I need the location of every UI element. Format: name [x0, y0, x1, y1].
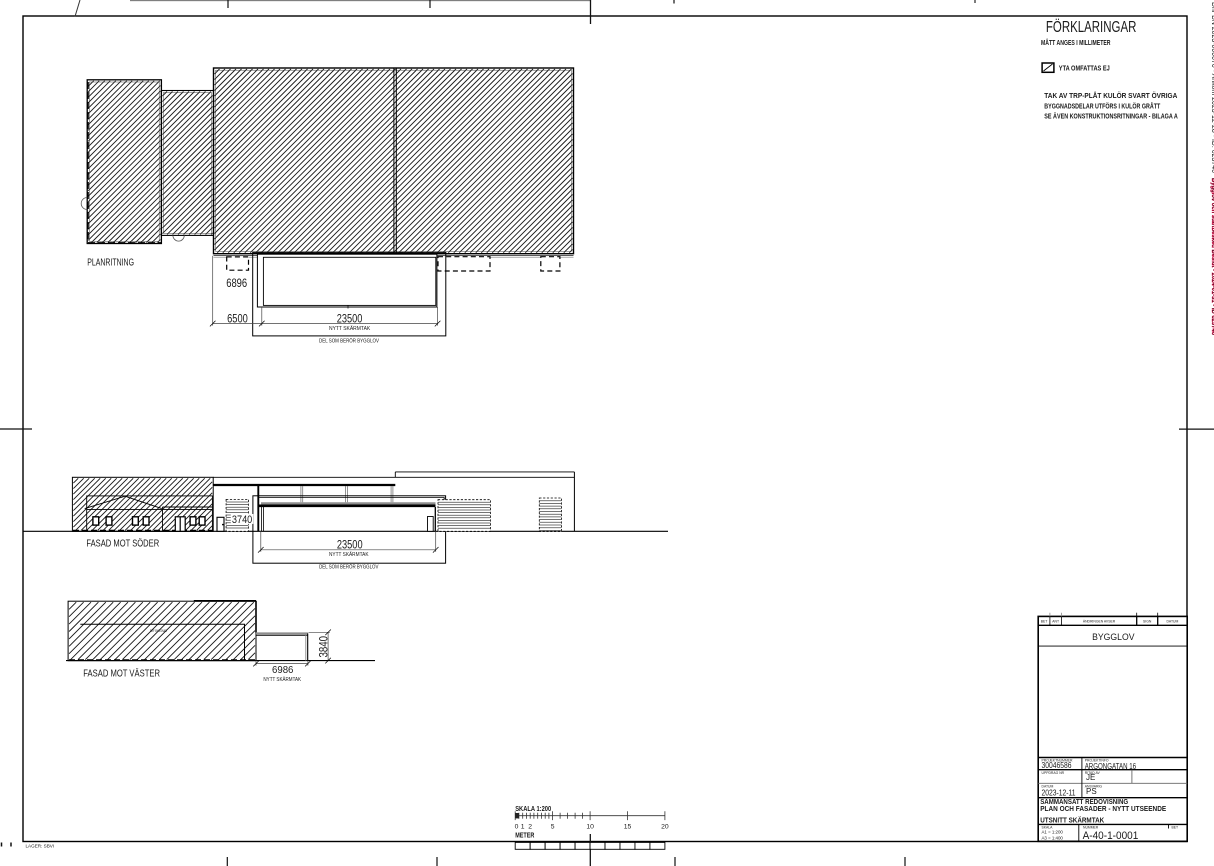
svg-text:ÄNDRINGEN AVSER: ÄNDRINGEN AVSER — [1083, 619, 1116, 623]
svg-text:6500: 6500 — [227, 314, 248, 326]
svg-text:6896: 6896 — [226, 278, 247, 290]
svg-text:UTSNITT SKÄRMTAK: UTSNITT SKÄRMTAK — [1040, 816, 1104, 825]
svg-text:Dnr BN 2023-000070 - Ankom 202: Dnr BN 2023-000070 - Ankom 2023-12-28 - … — [1210, 2, 1214, 173]
svg-text:BET: BET — [1041, 619, 1048, 623]
svg-text:ARGONGATAN 16: ARGONGATAN 16 — [1085, 762, 1137, 771]
svg-text:SKALA 1:200: SKALA 1:200 — [515, 806, 551, 813]
svg-text:PLAN OCH FASADER - NYTT UTSEEN: PLAN OCH FASADER - NYTT UTSEENDE — [1040, 804, 1166, 813]
svg-text:PLANRITNING: PLANRITNING — [87, 257, 134, 268]
svg-text:FASAD MOT VÄSTER: FASAD MOT VÄSTER — [83, 669, 160, 680]
svg-text:FÖRKLARINGAR: FÖRKLARINGAR — [1046, 18, 1137, 36]
svg-text:BEF BYGGNAD: BEF BYGGNAD — [150, 629, 167, 633]
svg-text:23500: 23500 — [337, 539, 363, 551]
svg-text:2: 2 — [528, 824, 532, 831]
svg-text:TAK AV TRP-PLÅT KULÖR SVART ÖV: TAK AV TRP-PLÅT KULÖR SVART ÖVRIGA — [1044, 91, 1178, 100]
svg-text:1: 1 — [521, 824, 525, 831]
svg-text:JE: JE — [1086, 773, 1095, 782]
svg-text:NYTT SKÄRMTAK: NYTT SKÄRMTAK — [263, 676, 301, 683]
svg-text:DEL SOM BERÖR BYGGLOV: DEL SOM BERÖR BYGGLOV — [319, 337, 379, 344]
svg-text:NYTT SKÄRMTAK: NYTT SKÄRMTAK — [329, 551, 369, 558]
svg-text:UPPDRAG NR: UPPDRAG NR — [1042, 771, 1065, 775]
svg-text:0: 0 — [515, 824, 519, 831]
svg-text:20: 20 — [661, 824, 669, 831]
svg-text:30046586: 30046586 — [1042, 761, 1072, 770]
svg-text:23500: 23500 — [337, 314, 363, 326]
svg-text:BYGGLOV: BYGGLOV — [1092, 632, 1135, 643]
svg-text:LAGER: SBVI: LAGER: SBVI — [26, 844, 55, 849]
svg-text:6986: 6986 — [272, 664, 294, 676]
svg-text:3740: 3740 — [232, 514, 252, 526]
svg-text:5: 5 — [551, 824, 555, 831]
svg-text:BET: BET — [1172, 825, 1179, 829]
svg-text:MÅTT ANGES I MILLIMETER: MÅTT ANGES I MILLIMETER — [1041, 38, 1111, 47]
svg-text:3840: 3840 — [317, 636, 331, 658]
svg-text:NYTT SKÄRMTAK: NYTT SKÄRMTAK — [329, 325, 370, 332]
svg-text:A-40-1-0001: A-40-1-0001 — [1083, 830, 1139, 842]
svg-text:PS: PS — [1086, 787, 1097, 796]
svg-text:15: 15 — [624, 824, 632, 831]
svg-text:YTA OMFATTAS EJ: YTA OMFATTAS EJ — [1059, 66, 1110, 73]
svg-text:ANT: ANT — [1052, 619, 1059, 623]
svg-text:SIGN: SIGN — [1143, 619, 1152, 623]
svg-text:10: 10 — [586, 824, 594, 831]
svg-text:A1 = 1:200: A1 = 1:200 — [1042, 829, 1064, 834]
svg-text:FASAD MOT SÖDER: FASAD MOT SÖDER — [86, 538, 159, 549]
svg-text:METER: METER — [515, 833, 534, 840]
svg-text:SE ÄVEN KONSTRUKTIONSRITNINGAR: SE ÄVEN KONSTRUKTIONSRITNINGAR - BILAGA … — [1044, 112, 1178, 121]
svg-text:A3 = 1:400: A3 = 1:400 — [1042, 836, 1064, 841]
svg-text:DATUM: DATUM — [1166, 619, 1178, 623]
svg-text:BYGGNADSDELAR UTFÖRS I KULÖR G: BYGGNADSDELAR UTFÖRS I KULÖR GRÅTT — [1044, 101, 1160, 110]
svg-text:Bygglov och startbesked Beslut: Bygglov och startbesked Beslut - 2024-01… — [1210, 178, 1214, 335]
svg-text:NUMMER: NUMMER — [1083, 825, 1099, 829]
svg-text:DEL SOM BERÖR BYGGLOV: DEL SOM BERÖR BYGGLOV — [319, 563, 379, 570]
